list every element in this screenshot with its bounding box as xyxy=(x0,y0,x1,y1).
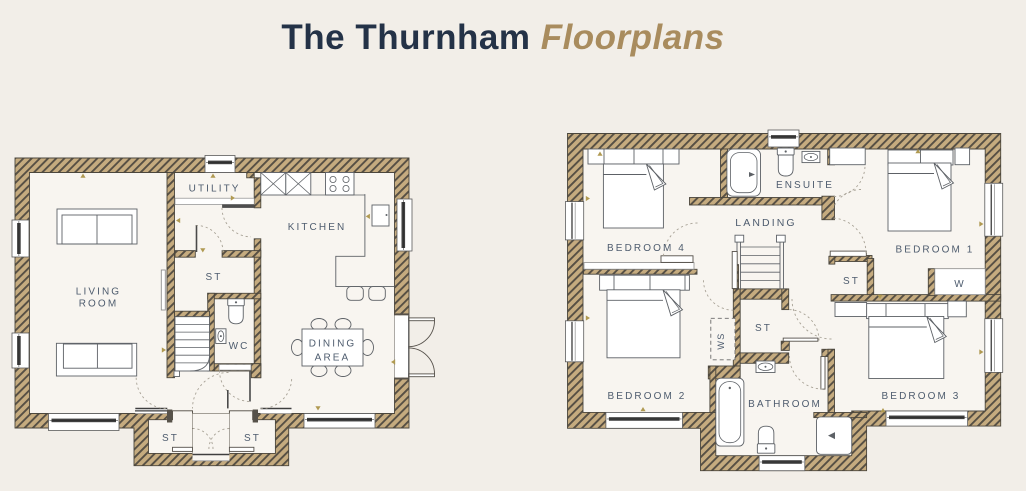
svg-text:WC: WC xyxy=(229,341,250,352)
svg-text:BEDROOM 1: BEDROOM 1 xyxy=(896,245,975,256)
svg-text:ST: ST xyxy=(244,433,261,444)
svg-text:ENSUITE: ENSUITE xyxy=(776,180,834,191)
svg-text:ST: ST xyxy=(206,272,223,283)
svg-text:WS: WS xyxy=(716,332,726,349)
svg-text:BATHROOM: BATHROOM xyxy=(748,399,822,410)
svg-text:DINING: DINING xyxy=(309,339,357,350)
svg-text:BEDROOM 3: BEDROOM 3 xyxy=(882,391,961,402)
svg-text:LIVING: LIVING xyxy=(76,287,121,298)
svg-text:ST: ST xyxy=(755,323,772,334)
svg-text:LANDING: LANDING xyxy=(735,217,796,229)
svg-text:UTILITY: UTILITY xyxy=(189,184,241,195)
svg-text:ST: ST xyxy=(843,276,860,287)
svg-text:BEDROOM 2: BEDROOM 2 xyxy=(608,391,687,402)
svg-text:W: W xyxy=(954,279,966,290)
svg-text:BEDROOM 4: BEDROOM 4 xyxy=(607,243,686,254)
svg-text:ST: ST xyxy=(162,433,179,444)
svg-text:AREA: AREA xyxy=(315,353,351,364)
svg-text:KITCHEN: KITCHEN xyxy=(288,222,347,233)
svg-text:ROOM: ROOM xyxy=(79,299,119,310)
